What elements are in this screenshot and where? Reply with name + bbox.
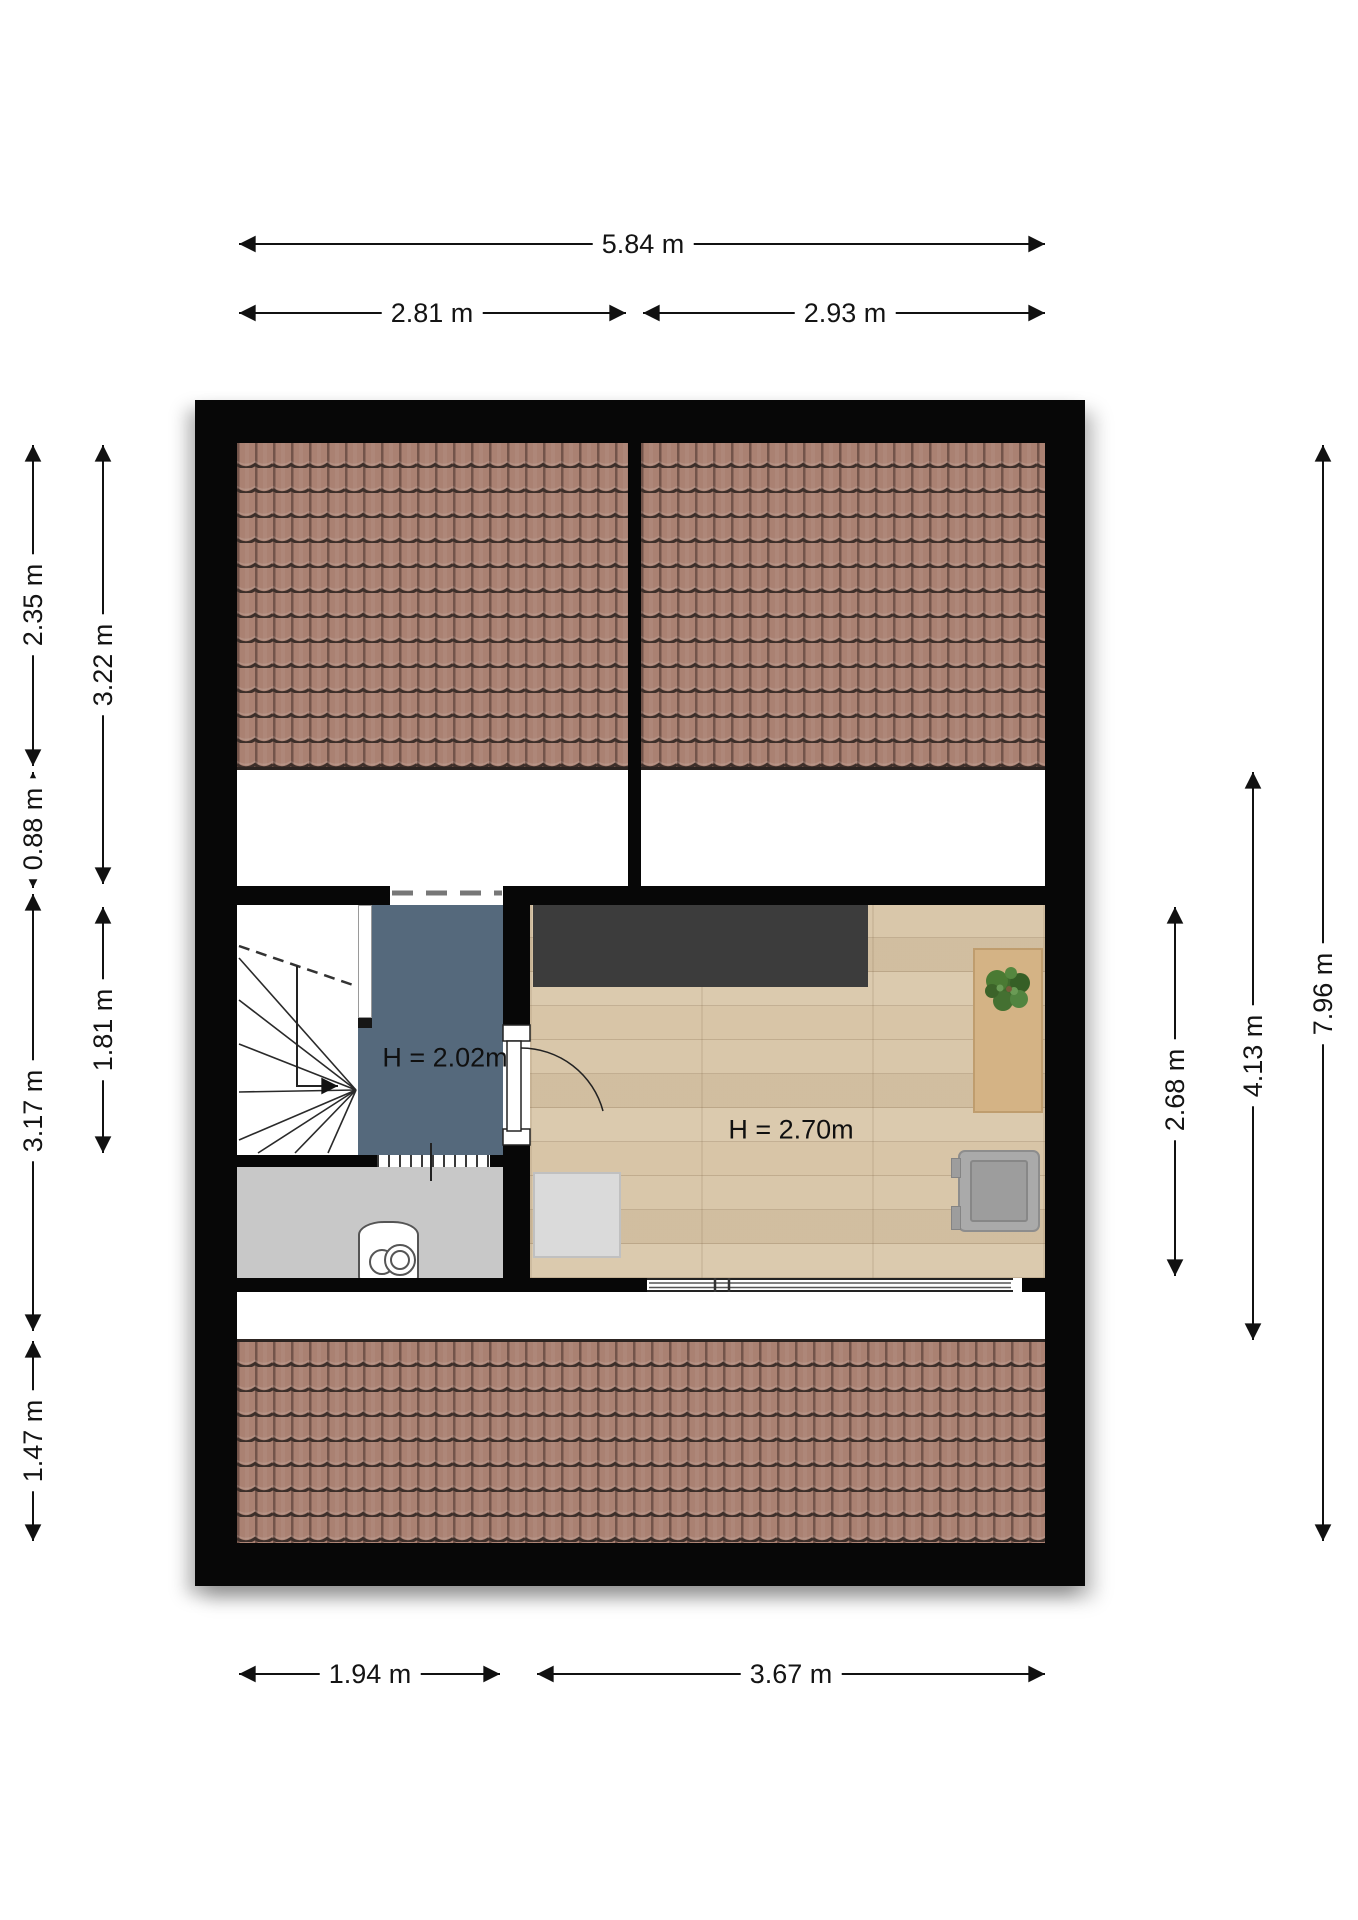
seat-arm-top — [951, 1158, 961, 1178]
storage-top-wall-left — [237, 1155, 377, 1167]
dresser — [533, 1172, 621, 1258]
dim-bottom-right: 3.67 m — [741, 1659, 842, 1689]
bottom-inner-wall-left — [237, 1278, 647, 1292]
dim-left-outer-1: 2.35 m — [18, 555, 48, 656]
landing-open-edge — [390, 886, 503, 905]
stair-railing-cap — [358, 1018, 372, 1028]
landing-height-label: H = 2.02m — [382, 1043, 507, 1074]
landing-right-wall-lower — [503, 1140, 530, 1278]
dim-left-inner-1: 3.22 m — [88, 615, 118, 716]
dim-left-inner-2: 1.81 m — [88, 980, 118, 1081]
bottom-eave-strip — [237, 1292, 1045, 1339]
roof-top-right — [641, 443, 1045, 770]
dim-top-right: 2.93 m — [795, 298, 896, 328]
boiler-dial-right — [384, 1244, 416, 1276]
roof-top-left — [237, 443, 628, 770]
floorplan-canvas: 5.84 m 2.81 m 2.93 m 2.35 m 0.88 m 3.17 … — [0, 0, 1358, 1920]
dim-left-outer-4: 1.47 m — [18, 1391, 48, 1492]
boiler — [358, 1221, 419, 1282]
mid-wall-right — [641, 886, 1045, 905]
party-wall — [628, 443, 641, 905]
seat-cushion — [970, 1160, 1028, 1222]
dim-right-middle: 4.13 m — [1238, 1006, 1268, 1107]
dim-right-total: 7.96 m — [1308, 944, 1338, 1045]
seat-arm-bottom — [951, 1206, 961, 1230]
seat — [958, 1150, 1040, 1232]
dim-top-left: 2.81 m — [382, 298, 483, 328]
plant-icon — [978, 958, 1040, 1020]
dim-bottom-left: 1.94 m — [320, 1659, 421, 1689]
landing-right-wall-upper — [503, 905, 530, 1030]
storage-opening-hatch — [377, 1155, 490, 1167]
mid-wall-left — [237, 886, 390, 905]
built-in-closet — [533, 905, 868, 987]
window — [647, 1278, 1013, 1292]
dim-left-outer-2: 0.88 m — [18, 779, 48, 880]
boiler-dial-ring — [390, 1250, 410, 1270]
dim-top-total: 5.84 m — [593, 229, 694, 259]
roof-eave-line-left — [237, 767, 628, 770]
landing-floor-ext — [358, 1028, 372, 1155]
landing-floor — [372, 905, 503, 1155]
window-end-cap — [1013, 1278, 1022, 1292]
roof-eave-line-right — [641, 767, 1045, 770]
bottom-inner-wall-right — [1022, 1278, 1045, 1292]
dim-right-room: 2.68 m — [1160, 1040, 1190, 1141]
dim-left-outer-3: 3.17 m — [18, 1061, 48, 1162]
storage-top-wall-right — [490, 1155, 503, 1167]
attic-room-height-label: H = 2.70m — [728, 1115, 853, 1146]
mid-wall-center — [503, 886, 628, 905]
roof-bottom — [237, 1342, 1045, 1543]
stair-railing — [358, 905, 372, 1018]
